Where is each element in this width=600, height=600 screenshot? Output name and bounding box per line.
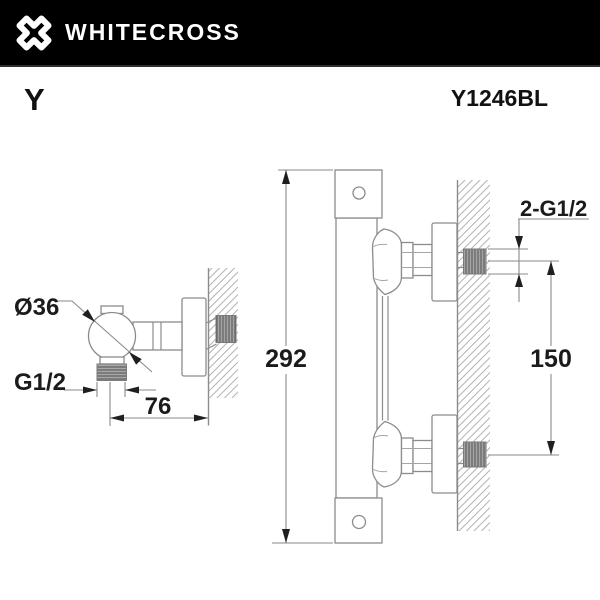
outlet-neck <box>100 357 124 364</box>
dimension-wall-distance: 76 <box>110 393 208 422</box>
top-screw-hole <box>353 187 365 199</box>
escutcheon-plate <box>182 298 206 376</box>
overall-height-label: 292 <box>265 345 307 373</box>
side-view-drawing: Ø36 G1/2 76 <box>14 268 238 426</box>
wall-distance-label: 76 <box>145 393 172 420</box>
valve-diameter-label: Ø36 <box>14 294 59 321</box>
valve-body <box>89 306 136 381</box>
bottom-screw-hole <box>353 516 366 529</box>
dimension-connection-spacing: 150 <box>488 261 572 455</box>
outlet-thread-label: G1/2 <box>14 369 66 396</box>
technical-drawing: 292 150 2-G1/2 <box>0 0 600 600</box>
mixer-bar <box>335 170 388 543</box>
front-view-drawing: 292 150 2-G1/2 <box>265 170 589 543</box>
dimension-connection-thread: 2-G1/2 <box>488 196 589 302</box>
dimension-overall-height: 292 <box>265 170 333 543</box>
outlet-thread <box>97 364 127 381</box>
wall-section-right <box>457 180 490 531</box>
connection-spacing-label: 150 <box>530 345 572 373</box>
connection-pipe <box>133 322 182 350</box>
connection-thread-label: 2-G1/2 <box>520 196 587 221</box>
